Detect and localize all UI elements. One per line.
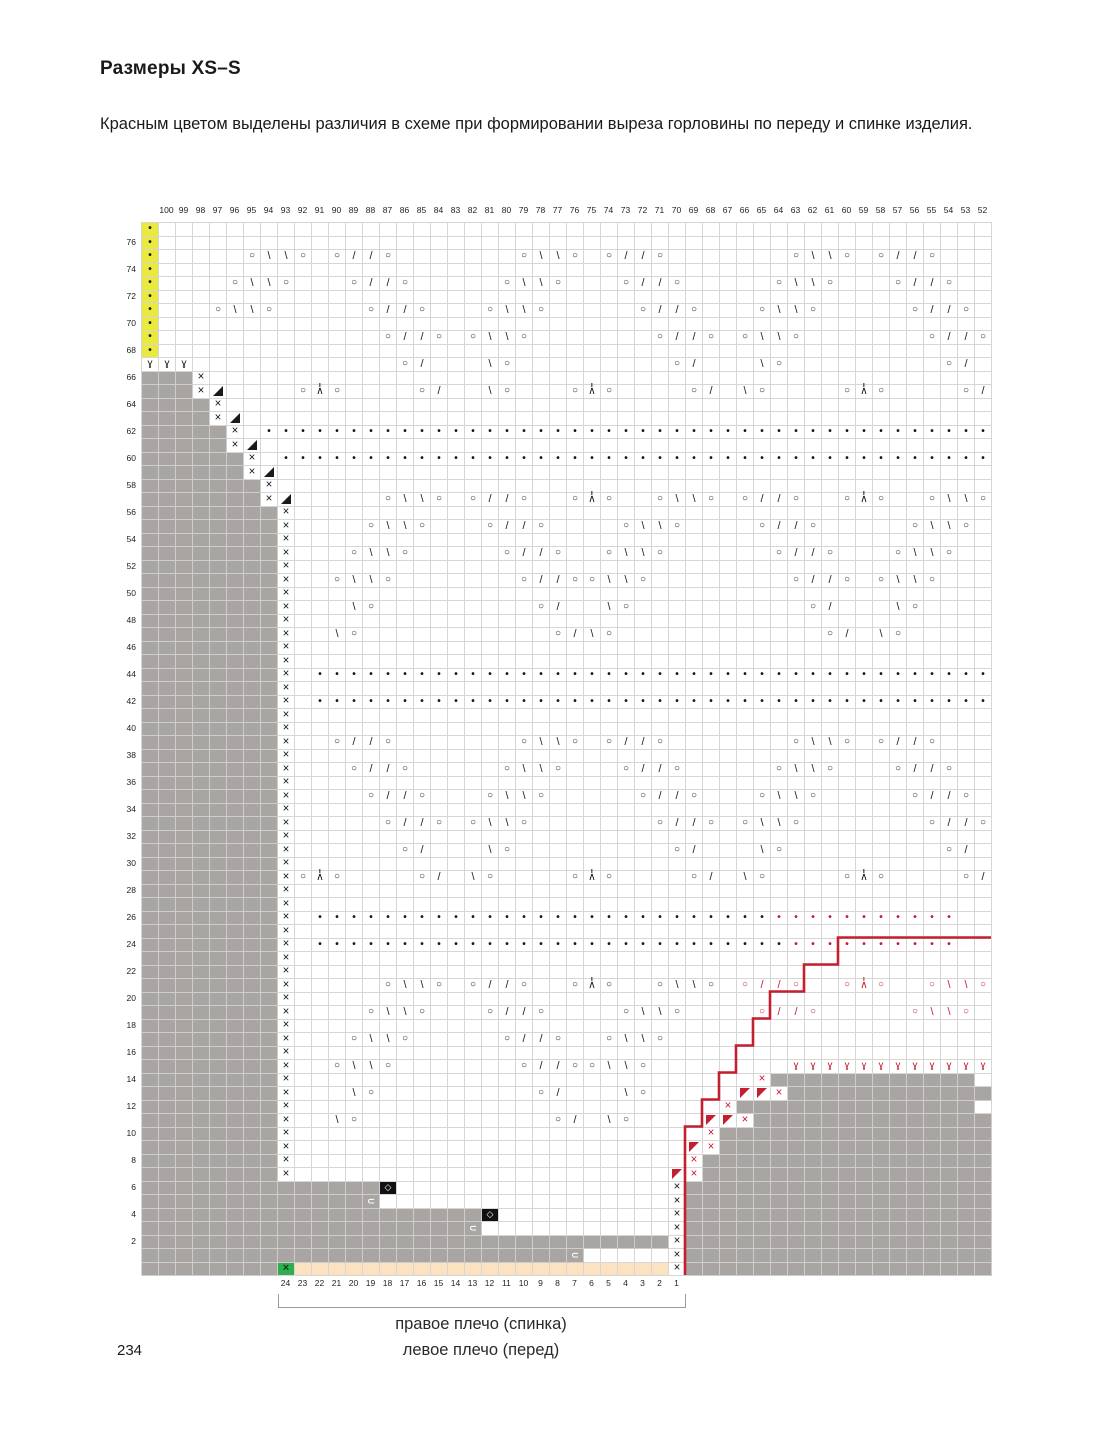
chart-cell	[397, 885, 414, 899]
stitch-symbol: •	[488, 940, 492, 950]
chart-cell	[210, 385, 227, 399]
chart-cell	[737, 1195, 754, 1209]
chart-cell	[941, 1222, 958, 1236]
chart-cell	[363, 925, 380, 939]
chart-cell	[193, 1263, 210, 1277]
chart-cell	[924, 750, 941, 764]
chart-cell	[295, 858, 312, 872]
chart-cell	[227, 804, 244, 818]
chart-cell	[295, 669, 312, 683]
chart-cell	[941, 831, 958, 845]
chart-cell	[737, 223, 754, 237]
stitch-symbol: •	[437, 427, 441, 437]
chart-cell	[516, 723, 533, 737]
chart-cell: •	[431, 912, 448, 926]
chart-cell	[414, 1209, 431, 1223]
stitch-symbol: •	[403, 427, 407, 437]
chart-cell	[720, 601, 737, 615]
chart-cell	[482, 1141, 499, 1155]
chart-cell	[958, 1033, 975, 1047]
chart-cell	[907, 898, 924, 912]
chart-cell	[754, 736, 771, 750]
chart-cell	[737, 763, 754, 777]
chart-cell	[431, 1033, 448, 1047]
chart-cell	[244, 723, 261, 737]
chart-cell: •	[788, 453, 805, 467]
chart-cell	[856, 1047, 873, 1061]
chart-cell: ○	[958, 385, 975, 399]
chart-cell	[788, 534, 805, 548]
chart-cell	[448, 547, 465, 561]
chart-cell	[550, 1128, 567, 1142]
stitch-symbol: ○	[691, 872, 697, 882]
chart-cell	[312, 223, 329, 237]
stitch-symbol: ○	[606, 494, 612, 504]
chart-cell: •	[329, 939, 346, 953]
chart-cell	[363, 682, 380, 696]
chart-cell	[822, 466, 839, 480]
stitch-symbol: •	[709, 670, 713, 680]
chart-cell	[193, 561, 210, 575]
stitch-symbol: •	[777, 913, 781, 923]
stitch-symbol: ×	[283, 993, 290, 1005]
chart-cell	[975, 264, 992, 278]
chart-cell	[346, 844, 363, 858]
stitch-symbol: ○	[929, 737, 935, 747]
stitch-symbol: •	[794, 940, 798, 950]
stitch-symbol: •	[692, 697, 696, 707]
chart-cell	[227, 993, 244, 1007]
chart-cell	[635, 1236, 652, 1250]
chart-cell	[482, 264, 499, 278]
chart-cell: ○	[958, 1006, 975, 1020]
chart-cell	[210, 1249, 227, 1263]
stitch-symbol: •	[301, 427, 305, 437]
chart-cell: \	[958, 493, 975, 507]
chart-cell	[142, 871, 159, 885]
chart-cell: ○	[465, 817, 482, 831]
chart-cell: \	[686, 979, 703, 993]
chart-cell	[805, 966, 822, 980]
chart-cell	[363, 804, 380, 818]
chart-cell	[907, 345, 924, 359]
top-column-label: 77	[549, 205, 566, 215]
chart-cell	[550, 790, 567, 804]
chart-cell: ∧	[584, 493, 601, 507]
stitch-symbol: ×	[742, 1115, 749, 1127]
chart-cell	[397, 858, 414, 872]
chart-cell: •	[754, 669, 771, 683]
top-column-label: 92	[294, 205, 311, 215]
chart-cell	[788, 682, 805, 696]
chart-cell: ○	[499, 763, 516, 777]
chart-cell	[873, 1033, 890, 1047]
chart-cell	[227, 736, 244, 750]
chart-cell	[754, 574, 771, 588]
chart-cell	[295, 399, 312, 413]
chart-cell	[958, 1195, 975, 1209]
chart-cell: •	[839, 669, 856, 683]
chart-cell: ○	[533, 1006, 550, 1020]
chart-cell	[533, 264, 550, 278]
chart-cell	[822, 1047, 839, 1061]
chart-cell	[295, 507, 312, 521]
chart-cell	[499, 1074, 516, 1088]
chart-cell	[975, 399, 992, 413]
chart-cell	[856, 1222, 873, 1236]
chart-cell	[601, 1020, 618, 1034]
chart-cell	[669, 1168, 686, 1182]
chart-cell	[686, 345, 703, 359]
chart-cell: ○	[329, 736, 346, 750]
top-column-label: 67	[719, 205, 736, 215]
chart-cell	[227, 372, 244, 386]
stitch-symbol: •	[318, 454, 322, 464]
chart-cell	[397, 736, 414, 750]
chart-cell: •	[686, 912, 703, 926]
stitch-symbol: ○	[912, 521, 918, 531]
chart-cell	[448, 1020, 465, 1034]
chart-cell	[465, 804, 482, 818]
chart-cell: ○	[686, 304, 703, 318]
chart-cell	[363, 331, 380, 345]
chart-cell: •	[295, 426, 312, 440]
chart-cell	[737, 574, 754, 588]
chart-cell	[227, 1114, 244, 1128]
chart-cell	[686, 1087, 703, 1101]
chart-cell	[805, 318, 822, 332]
chart-cell	[873, 1020, 890, 1034]
chart-cell	[839, 723, 856, 737]
bind-off-triangle-icon	[230, 413, 240, 423]
chart-cell	[533, 1209, 550, 1223]
chart-cell	[499, 925, 516, 939]
chart-cell: •	[703, 696, 720, 710]
chart-cell	[176, 318, 193, 332]
stitch-symbol: •	[845, 940, 849, 950]
stitch-symbol: •	[828, 454, 832, 464]
chart-cell: ○	[805, 1006, 822, 1020]
chart-cell	[295, 912, 312, 926]
chart-cell	[261, 723, 278, 737]
stitch-symbol: •	[539, 427, 543, 437]
left-row-label: 60	[108, 452, 136, 466]
chart-cell	[958, 372, 975, 386]
chart-cell	[397, 1263, 414, 1277]
chart-cell	[720, 1074, 737, 1088]
chart-cell	[176, 304, 193, 318]
chart-cell	[431, 372, 448, 386]
chart-cell: ○	[499, 1033, 516, 1047]
stitch-symbol: ∧	[588, 386, 596, 397]
chart-cell	[482, 1249, 499, 1263]
chart-cell	[567, 925, 584, 939]
chart-cell: ○	[669, 520, 686, 534]
chart-cell	[737, 1060, 754, 1074]
chart-cell	[958, 1020, 975, 1034]
chart-cell	[295, 655, 312, 669]
stitch-symbol: ○	[640, 1061, 646, 1071]
chart-cell	[941, 385, 958, 399]
chart-cell	[703, 1101, 720, 1115]
chart-cell	[516, 615, 533, 629]
chart-cell	[193, 601, 210, 615]
chart-cell	[788, 1182, 805, 1196]
chart-cell	[482, 1168, 499, 1182]
chart-cell	[601, 723, 618, 737]
chart-cell	[856, 736, 873, 750]
chart-cell: /	[533, 1060, 550, 1074]
chart-cell	[652, 439, 669, 453]
stitch-symbol: ∧	[860, 494, 868, 505]
chart-cell	[652, 871, 669, 885]
chart-cell	[346, 399, 363, 413]
chart-cell	[805, 844, 822, 858]
chart-cell	[210, 318, 227, 332]
chart-cell	[839, 1006, 856, 1020]
chart-cell	[533, 615, 550, 629]
stitch-symbol: \	[556, 251, 559, 262]
stitch-symbol: ○	[623, 602, 629, 612]
stitch-symbol: \	[403, 1007, 406, 1018]
chart-cell	[244, 601, 261, 615]
chart-cell	[890, 1141, 907, 1155]
top-column-label: 55	[923, 205, 940, 215]
chart-cell: ○	[601, 736, 618, 750]
chart-cell: /	[924, 277, 941, 291]
chart-cell	[227, 1155, 244, 1169]
chart-cell	[363, 223, 380, 237]
stitch-symbol: ○	[555, 629, 561, 639]
stitch-symbol: •	[862, 697, 866, 707]
chart-cell	[431, 1114, 448, 1128]
stitch-symbol: ×	[674, 1209, 681, 1221]
stitch-symbol: \	[352, 1088, 355, 1099]
stitch-symbol: ⊂	[367, 1197, 375, 1206]
chart-cell	[465, 925, 482, 939]
chart-cell	[601, 331, 618, 345]
stitch-symbol: ○	[640, 1088, 646, 1098]
chart-cell	[839, 1236, 856, 1250]
chart-cell	[907, 223, 924, 237]
stitch-symbol: ○	[589, 575, 595, 585]
chart-cell	[227, 952, 244, 966]
chart-cell: ×	[193, 385, 210, 399]
chart-cell	[567, 966, 584, 980]
chart-cell: \	[482, 817, 499, 831]
chart-cell: ○	[703, 979, 720, 993]
chart-cell	[499, 264, 516, 278]
bottom-column-label: 20	[345, 1278, 362, 1288]
chart-cell: •	[516, 939, 533, 953]
chart-cell	[346, 642, 363, 656]
chart-cell: /	[839, 628, 856, 642]
chart-cell	[822, 1128, 839, 1142]
chart-cell	[635, 345, 652, 359]
stitch-symbol: ○	[759, 791, 765, 801]
chart-cell	[159, 912, 176, 926]
stitch-symbol: •	[437, 940, 441, 950]
stitch-symbol: •	[930, 940, 934, 950]
stitch-symbol: ○	[385, 980, 391, 990]
chart-cell	[380, 1114, 397, 1128]
chart-cell: \	[601, 1060, 618, 1074]
chart-cell	[567, 358, 584, 372]
chart-cell: •	[805, 696, 822, 710]
chart-cell	[856, 291, 873, 305]
chart-cell	[635, 466, 652, 480]
chart-cell: \	[329, 628, 346, 642]
chart-cell	[924, 372, 941, 386]
chart-cell	[193, 345, 210, 359]
chart-cell	[516, 709, 533, 723]
chart-cell: \	[380, 1006, 397, 1020]
stitch-symbol: ○	[538, 1007, 544, 1017]
chart-cell	[346, 1141, 363, 1155]
chart-cell	[720, 372, 737, 386]
chart-cell: •	[669, 939, 686, 953]
chart-cell	[584, 817, 601, 831]
chart-cell	[397, 1195, 414, 1209]
top-column-label: 97	[209, 205, 226, 215]
chart-cell	[465, 1141, 482, 1155]
stitch-symbol: ○	[334, 737, 340, 747]
chart-cell	[244, 1141, 261, 1155]
chart-cell	[312, 493, 329, 507]
chart-cell	[193, 426, 210, 440]
chart-cell	[176, 1195, 193, 1209]
chart-cell	[465, 1087, 482, 1101]
chart-cell	[244, 507, 261, 521]
chart-cell	[431, 642, 448, 656]
chart-cell	[397, 723, 414, 737]
chart-cell	[193, 250, 210, 264]
chart-cell	[788, 1222, 805, 1236]
chart-cell	[482, 466, 499, 480]
chart-cell	[873, 682, 890, 696]
chart-cell: \	[754, 844, 771, 858]
chart-cell	[703, 1155, 720, 1169]
chart-cell	[363, 372, 380, 386]
chart-cell	[890, 1101, 907, 1115]
chart-cell	[737, 723, 754, 737]
chart-cell	[975, 1263, 992, 1277]
chart-cell	[601, 1263, 618, 1277]
stitch-symbol: ○	[895, 548, 901, 558]
chart-cell	[635, 480, 652, 494]
chart-cell: ○	[295, 385, 312, 399]
stitch-symbol: ○	[385, 575, 391, 585]
chart-cell	[686, 223, 703, 237]
stitch-symbol: •	[896, 940, 900, 950]
stitch-symbol: ×	[283, 1020, 290, 1032]
chart-cell	[363, 1263, 380, 1277]
chart-cell	[244, 1155, 261, 1169]
chart-cell: \	[261, 250, 278, 264]
chart-cell	[210, 507, 227, 521]
chart-cell	[754, 615, 771, 629]
chart-cell	[261, 628, 278, 642]
chart-cell: /	[890, 736, 907, 750]
chart-cell: •	[754, 939, 771, 953]
left-row-label: 72	[108, 290, 136, 304]
chart-cell	[618, 1222, 635, 1236]
chart-cell	[431, 480, 448, 494]
chart-cell	[210, 723, 227, 737]
chart-cell	[499, 534, 516, 548]
chart-cell	[295, 291, 312, 305]
stitch-symbol: ○	[844, 251, 850, 261]
chart-cell	[159, 291, 176, 305]
stitch-symbol: /	[386, 278, 389, 289]
chart-cell	[941, 291, 958, 305]
chart-cell: ○	[924, 331, 941, 345]
chart-cell	[601, 709, 618, 723]
chart-cell: ○	[567, 250, 584, 264]
chart-cell	[703, 1047, 720, 1061]
stitch-symbol: \	[522, 278, 525, 289]
chart-cell: /	[788, 547, 805, 561]
chart-cell	[465, 237, 482, 251]
stitch-symbol: •	[624, 913, 628, 923]
chart-cell: •	[754, 696, 771, 710]
chart-cell	[567, 1236, 584, 1250]
chart-cell	[907, 1236, 924, 1250]
chart-cell	[176, 925, 193, 939]
chart-cell	[567, 790, 584, 804]
chart-cell	[635, 358, 652, 372]
chart-cell	[550, 264, 567, 278]
chart-cell	[227, 1141, 244, 1155]
chart-cell	[720, 966, 737, 980]
chart-cell	[312, 318, 329, 332]
chart-cell: •	[499, 912, 516, 926]
stitch-symbol: ○	[334, 251, 340, 261]
chart-cell	[142, 480, 159, 494]
chart-cell	[975, 1236, 992, 1250]
stitch-symbol: \	[743, 872, 746, 883]
chart-cell	[244, 642, 261, 656]
stitch-symbol: \	[760, 845, 763, 856]
chart-cell	[516, 372, 533, 386]
stitch-symbol: •	[607, 940, 611, 950]
top-column-label: 86	[396, 205, 413, 215]
chart-cell	[414, 264, 431, 278]
chart-cell: /	[499, 1006, 516, 1020]
chart-cell: /	[652, 277, 669, 291]
chart-cell	[295, 1182, 312, 1196]
chart-cell	[431, 1047, 448, 1061]
chart-cell: ○	[669, 1006, 686, 1020]
chart-cell	[975, 561, 992, 575]
bottom-column-label: 21	[328, 1278, 345, 1288]
bind-off-triangle-icon	[247, 440, 257, 450]
stitch-symbol: /	[403, 305, 406, 316]
chart-cell	[924, 1128, 941, 1142]
chart-cell	[261, 1222, 278, 1236]
chart-cell	[839, 817, 856, 831]
chart-cell	[958, 655, 975, 669]
chart-cell	[516, 1047, 533, 1061]
chart-cell	[805, 750, 822, 764]
chart-cell	[159, 466, 176, 480]
chart-cell	[737, 642, 754, 656]
chart-cell: •	[567, 426, 584, 440]
chart-cell	[210, 1128, 227, 1142]
chart-cell: ∧	[856, 871, 873, 885]
chart-cell	[669, 466, 686, 480]
chart-cell	[193, 1101, 210, 1115]
